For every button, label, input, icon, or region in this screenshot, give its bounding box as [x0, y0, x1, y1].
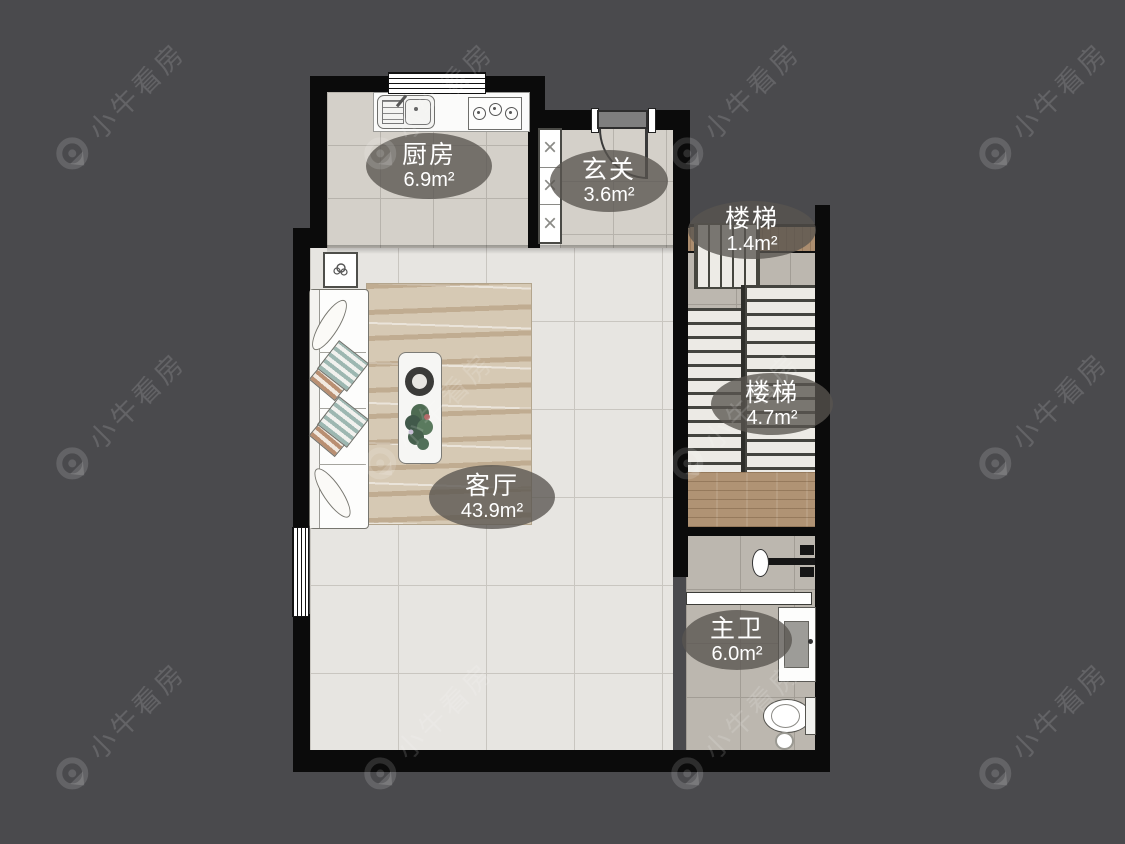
bull-pin-icon	[49, 750, 94, 795]
shower-head-icon	[752, 549, 769, 577]
vanity-faucet	[808, 639, 813, 644]
wall-art	[323, 252, 358, 288]
entrance-name: 玄关	[582, 156, 636, 184]
bull-pin-icon	[972, 130, 1017, 175]
cabinet-x-icon: ×	[540, 130, 560, 168]
stairs-small-name: 楼梯	[725, 205, 779, 233]
stairs-small-area: 1.4m²	[726, 233, 777, 255]
kitchen-stove-icon	[468, 97, 522, 130]
toilet-tank	[805, 697, 816, 735]
watermark-text: 小牛看房	[1001, 32, 1116, 147]
room-label-living: 客厅 43.9m²	[429, 465, 555, 529]
wall-kitchen-left	[310, 76, 327, 233]
watermark: 小牛看房	[47, 32, 193, 178]
floorplan-canvas: × × ×	[0, 0, 1125, 844]
room-label-entrance: 玄关 3.6m²	[550, 150, 668, 212]
wall-bath-top	[686, 527, 815, 536]
kitchen-area: 6.9m²	[403, 169, 454, 191]
watermark-text: 小牛看房	[78, 342, 193, 457]
bull-pin-icon	[972, 750, 1017, 795]
door-jamb-right	[648, 108, 656, 133]
wall-mid-right	[673, 224, 688, 577]
stove-burner	[473, 107, 486, 120]
bull-pin-icon	[972, 440, 1017, 485]
watermark-text: 小牛看房	[78, 652, 193, 767]
living-window	[292, 527, 309, 617]
watermark: 小牛看房	[970, 32, 1116, 178]
floor-drain-icon	[775, 732, 794, 750]
floor-edge-shadow	[327, 245, 673, 254]
living-name: 客厅	[465, 472, 519, 500]
bathroom-name: 主卫	[710, 615, 764, 643]
watermark: 小牛看房	[970, 342, 1116, 488]
watermark: 小牛看房	[662, 32, 808, 178]
shower-mount	[800, 567, 814, 577]
wall-plan-right	[815, 205, 830, 757]
watermark: 小牛看房	[47, 652, 193, 798]
cabinet-x-icon: ×	[540, 205, 560, 242]
bathroom-area: 6.0m²	[711, 643, 762, 665]
living-area: 43.9m²	[461, 500, 523, 522]
watermark-text: 小牛看房	[78, 32, 193, 147]
wall-entry-left-of-door	[540, 110, 597, 130]
shower-glass-partition	[686, 592, 812, 605]
wall-living-left-lower	[293, 614, 310, 772]
watermark-text: 小牛看房	[1001, 652, 1116, 767]
watermark-text: 小牛看房	[1001, 342, 1116, 457]
room-label-stairs-small: 楼梯 1.4m²	[688, 201, 816, 259]
flower-icon	[331, 260, 351, 280]
bull-pin-icon	[49, 130, 94, 175]
watermark: 小牛看房	[47, 342, 193, 488]
stove-burner	[505, 107, 518, 120]
shower-arm	[768, 558, 815, 565]
stove-burner	[489, 103, 502, 116]
shower-mount	[800, 545, 814, 555]
watermark: 小牛看房	[970, 652, 1116, 798]
entry-door-leaf	[597, 110, 648, 129]
watermark-text: 小牛看房	[693, 32, 808, 147]
entrance-area: 3.6m²	[583, 184, 634, 206]
wall-living-left-upper	[293, 233, 310, 527]
bull-pin-icon	[49, 440, 94, 485]
